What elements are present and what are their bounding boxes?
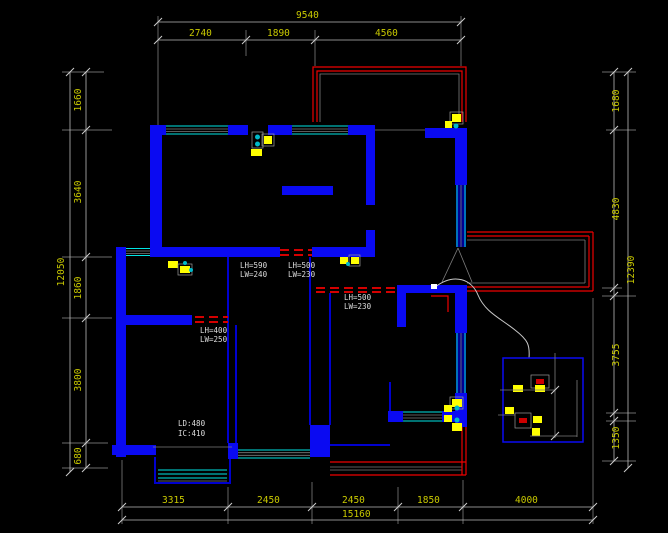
dim-left-seg-1: 1660 <box>73 88 84 111</box>
floor-plan-canvas[interactable]: 9540 2740 1890 4560 12050 1660 3640 1860… <box>0 0 668 533</box>
label-window-2-line1: LH=500 <box>288 261 316 270</box>
annotation-labels: LH=590 LW=240 LH=500 LW=230 LH=500 LW=23… <box>178 261 372 438</box>
balcony-outline-right <box>420 232 593 291</box>
wall-layer <box>112 125 467 459</box>
dim-right-seg-1: 1680 <box>611 89 622 112</box>
dim-bottom-seg-5: 4000 <box>515 495 538 506</box>
symbol-cluster-hall-top <box>251 132 274 156</box>
label-door-line1: LD:480 <box>178 419 206 428</box>
dim-top-seg-1: 2740 <box>189 28 212 39</box>
dimension-chain-top: 9540 2740 1890 4560 <box>154 10 465 152</box>
detail-box <box>498 353 583 442</box>
label-door-line2: IC:410 <box>178 429 206 438</box>
label-window-2-line2: LW=230 <box>288 270 316 279</box>
label-window-4-line2: LW=250 <box>200 335 228 344</box>
dim-top-seg-2: 1890 <box>267 28 290 39</box>
balcony-outline-top-right <box>313 67 466 122</box>
dim-left-seg-5: 680 <box>73 447 84 464</box>
dimension-chain-right: 1680 4830 3755 1350 12390 <box>602 68 637 472</box>
spline-grip <box>431 284 437 289</box>
dim-bottom-seg-1: 3315 <box>162 495 185 506</box>
balcony-outline-bottom-right <box>330 427 466 475</box>
window-layer <box>126 126 466 481</box>
dim-left-seg-3: 1860 <box>73 276 84 299</box>
dim-bottom-seg-3: 2450 <box>342 495 365 506</box>
dim-left-total: 12050 <box>56 257 67 286</box>
dim-top-total: 9540 <box>296 10 319 21</box>
dim-top-seg-3: 4560 <box>375 28 398 39</box>
dim-right-seg-4: 1350 <box>611 426 622 449</box>
electrical-symbols <box>168 112 463 431</box>
door-swing-lines <box>442 248 472 282</box>
cad-viewport[interactable]: 9540 2740 1890 4560 12050 1660 3640 1860… <box>0 0 668 533</box>
dim-left-seg-4: 3800 <box>73 368 84 391</box>
label-window-4-line1: LH=400 <box>200 326 228 335</box>
symbol-cluster-hall-mid <box>168 261 193 275</box>
dim-left-seg-2: 3640 <box>73 180 84 203</box>
dim-bottom-seg-4: 1850 <box>417 495 440 506</box>
symbol-cluster-livingroom-top <box>445 112 463 129</box>
dimension-chain-left: 12050 1660 3640 1860 3800 680 <box>56 68 112 476</box>
label-window-3-line1: LH=500 <box>344 293 372 302</box>
label-window-1-line2: LW=240 <box>240 270 268 279</box>
dim-right-seg-2: 4830 <box>611 197 622 220</box>
label-window-3-line2: LW=230 <box>344 302 372 311</box>
dimension-chain-bottom: 3315 2450 2450 1850 4000 15160 <box>118 298 597 524</box>
dim-bottom-total: 15160 <box>342 509 371 520</box>
dim-right-seg-3: 3755 <box>611 344 622 367</box>
dim-bottom-seg-2: 2450 <box>257 495 280 506</box>
label-window-1-line1: LH=590 <box>240 261 268 270</box>
dim-right-total: 12390 <box>626 255 637 284</box>
